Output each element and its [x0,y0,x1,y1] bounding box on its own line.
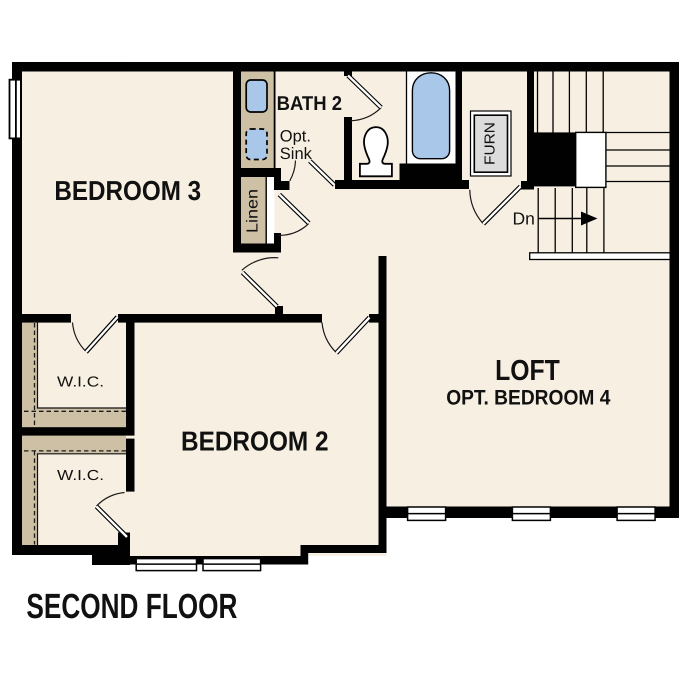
svg-text:Sink: Sink [280,145,313,163]
svg-text:Linen: Linen [245,189,262,233]
svg-text:BATH 2: BATH 2 [277,93,342,115]
svg-text:SECOND FLOOR: SECOND FLOOR [26,587,237,626]
svg-text:LOFT: LOFT [495,355,560,387]
svg-text:BEDROOM 3: BEDROOM 3 [54,175,201,206]
svg-text:Dn: Dn [513,209,535,229]
svg-text:FURN: FURN [483,122,499,165]
svg-text:W.I.C.: W.I.C. [57,374,104,390]
svg-text:Opt.: Opt. [280,127,311,145]
svg-text:OPT. BEDROOM 4: OPT. BEDROOM 4 [446,386,610,409]
svg-text:BEDROOM 2: BEDROOM 2 [181,425,329,456]
svg-text:W.I.C.: W.I.C. [57,468,104,484]
